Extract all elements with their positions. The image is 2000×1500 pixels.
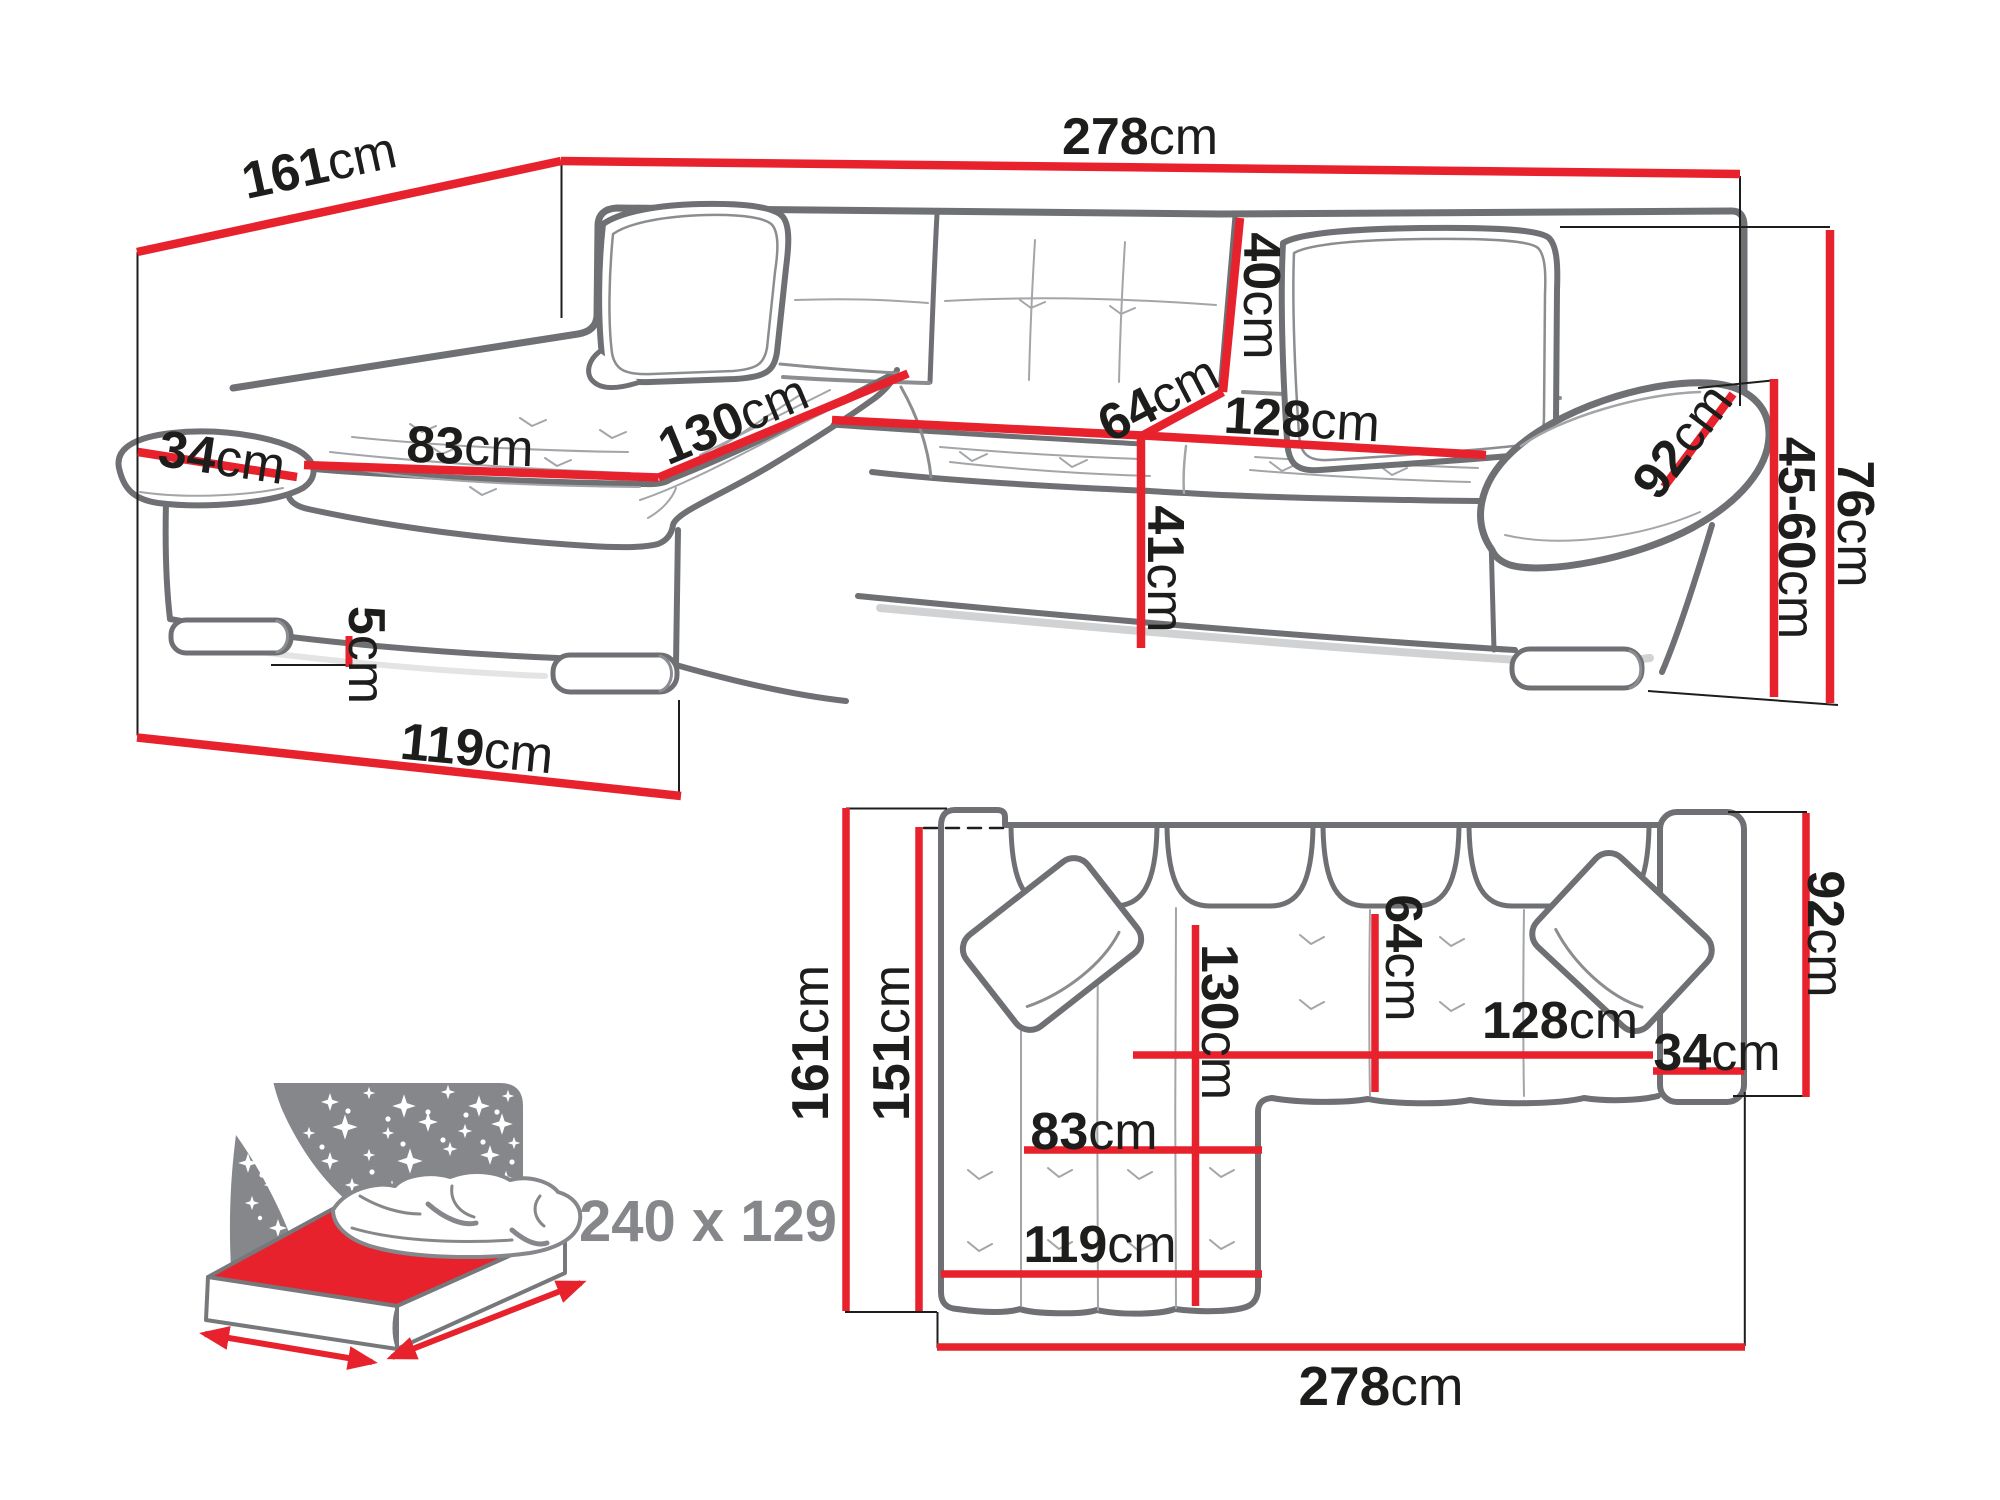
- svg-text:64cm: 64cm: [1374, 894, 1432, 1021]
- svg-text:40cm: 40cm: [1232, 232, 1290, 359]
- svg-text:128cm: 128cm: [1222, 387, 1381, 454]
- svg-text:76cm: 76cm: [1826, 460, 1884, 587]
- svg-text:130cm: 130cm: [1190, 944, 1248, 1100]
- svg-text:278cm: 278cm: [1062, 108, 1218, 166]
- svg-text:240 x 129: 240 x 129: [579, 1189, 837, 1254]
- svg-text:45-60cm: 45-60cm: [1767, 437, 1825, 639]
- svg-text:41cm: 41cm: [1136, 505, 1194, 632]
- svg-text:278cm: 278cm: [1298, 1355, 1463, 1417]
- svg-text:83cm: 83cm: [1030, 1103, 1157, 1161]
- svg-text:119cm: 119cm: [1023, 1216, 1176, 1274]
- svg-text:83cm: 83cm: [405, 416, 534, 478]
- svg-text:5cm: 5cm: [337, 606, 395, 704]
- svg-text:161cm: 161cm: [782, 965, 840, 1121]
- svg-text:151cm: 151cm: [863, 965, 921, 1121]
- svg-text:128cm: 128cm: [1482, 992, 1638, 1050]
- svg-text:92cm: 92cm: [1796, 870, 1854, 997]
- svg-text:34cm: 34cm: [1653, 1024, 1780, 1082]
